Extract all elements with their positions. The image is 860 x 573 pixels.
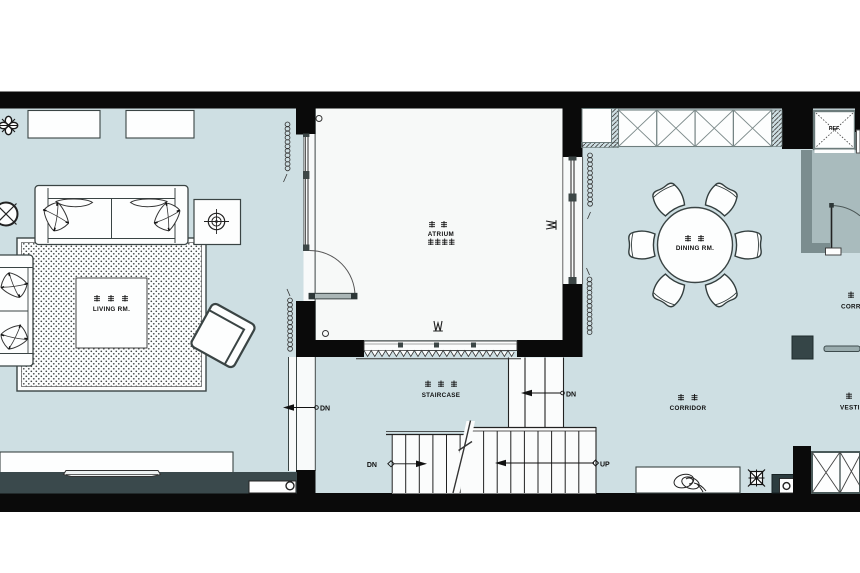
svg-text:CORRIDOR: CORRIDOR — [670, 405, 707, 412]
svg-text:DINING RM.: DINING RM. — [676, 245, 714, 252]
svg-text:DN: DN — [566, 392, 576, 399]
svg-text:VESTI: VESTI — [840, 405, 860, 412]
svg-text:DN: DN — [320, 406, 330, 413]
svg-text:LIVING RM.: LIVING RM. — [93, 306, 130, 313]
svg-text:STAIRCASE: STAIRCASE — [422, 392, 461, 399]
svg-text:REF.: REF. — [829, 126, 841, 132]
svg-text:ATRIUM: ATRIUM — [428, 231, 454, 238]
svg-text:DN: DN — [367, 462, 377, 469]
svg-text:UP: UP — [600, 462, 610, 469]
svg-text:CORRI: CORRI — [841, 304, 860, 311]
